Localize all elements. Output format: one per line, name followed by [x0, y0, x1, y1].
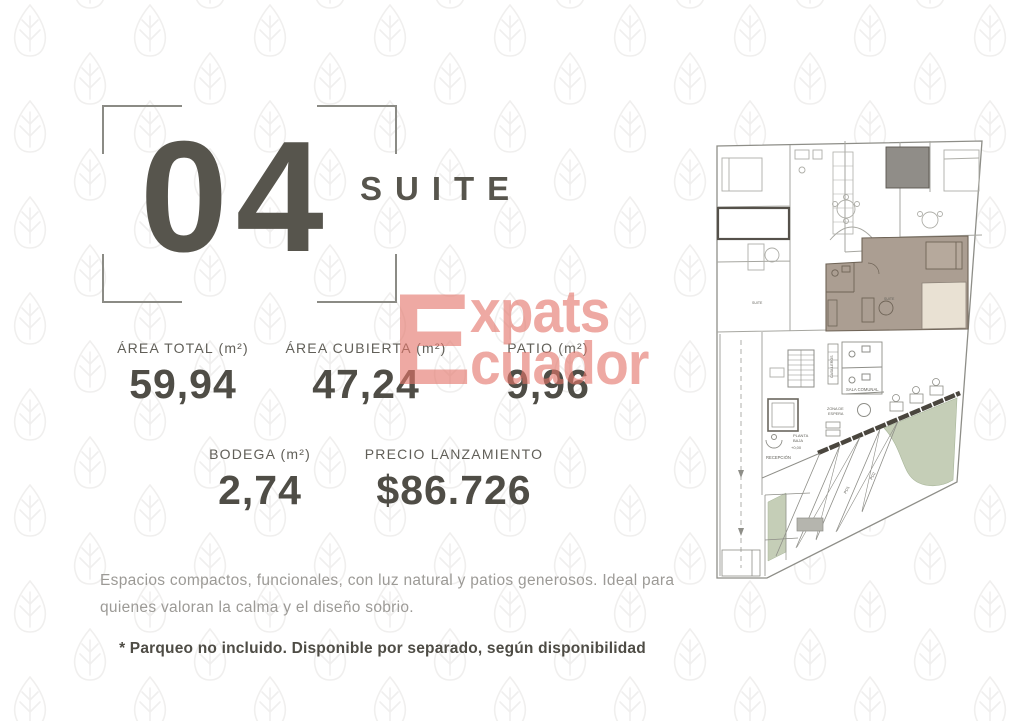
label-zona-de: ZONA DE — [827, 407, 844, 411]
stat-area-total-value: 59,94 — [98, 361, 268, 408]
stat-precio-value: $86.726 — [348, 467, 560, 514]
label-recepcion: RECEPCIÓN — [766, 455, 791, 460]
stat-patio-label: PATIO (m²) — [468, 340, 628, 356]
label-sala-comunal: SALA COMUNAL — [846, 387, 879, 392]
watermark-line-top: xpats — [470, 286, 649, 338]
stat-area-total: ÁREA TOTAL (m²) 59,94 — [98, 340, 268, 408]
parking-footnote: * Parqueo no incluido. Disponible por se… — [95, 640, 670, 658]
suite-patio — [922, 282, 966, 329]
stat-bodega-value: 2,74 — [175, 467, 345, 514]
label-level: +0,00 — [791, 445, 802, 450]
label-casilleros: CASILLEROS — [830, 355, 834, 378]
label-suite-right: SUITE — [884, 297, 895, 301]
stat-precio-label: PRECIO LANZAMIENTO — [348, 446, 560, 462]
stat-area-cubierta-value: 47,24 — [282, 361, 450, 408]
stat-area-cubierta-label: ÁREA CUBIERTA (m²) — [282, 340, 450, 356]
unit-number: 04 — [140, 126, 332, 268]
stat-patio-value: 9,96 — [468, 361, 628, 408]
floor-plan: PLANTA BAJA +0,00 RECEPCIÓN SALA COMUNAL… — [700, 136, 1010, 606]
label-suite-left: SUITE — [752, 301, 763, 305]
stat-bodega-label: BODEGA (m²) — [175, 446, 345, 462]
unit-type-label: SUITE — [360, 170, 522, 208]
label-baja: BAJA — [793, 438, 803, 443]
stat-patio: PATIO (m²) 9,96 — [468, 340, 628, 408]
stat-area-total-label: ÁREA TOTAL (m²) — [98, 340, 268, 356]
stat-area-cubierta: ÁREA CUBIERTA (m²) 47,24 — [282, 340, 450, 408]
label-espera: ESPERA — [828, 412, 844, 416]
stat-bodega: BODEGA (m²) 2,74 — [175, 446, 345, 514]
stat-precio: PRECIO LANZAMIENTO $86.726 — [348, 446, 560, 514]
description-text: Espacios compactos, funcionales, con luz… — [100, 568, 692, 621]
